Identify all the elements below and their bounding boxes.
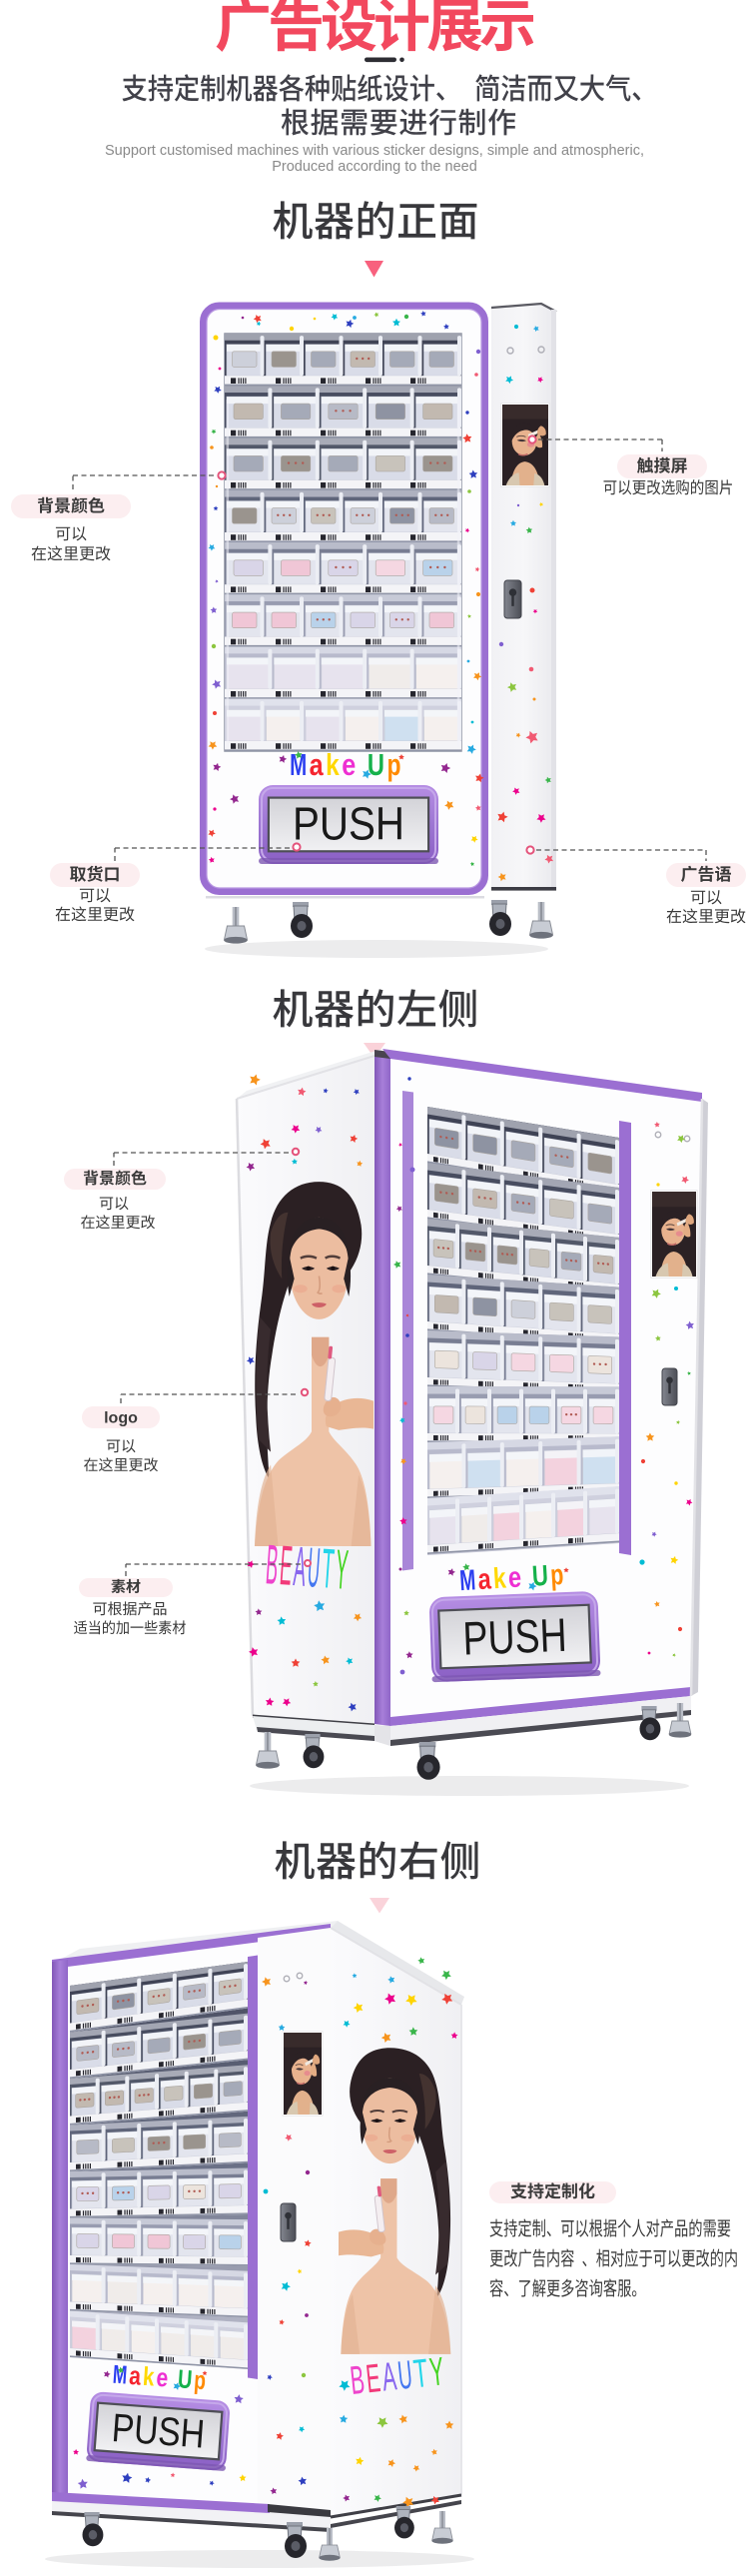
svg-text:PUSH: PUSH <box>110 2406 206 2457</box>
svg-text:Support customised machines wi: Support customised machines with various… <box>105 143 644 159</box>
svg-text:p: p <box>193 2364 207 2395</box>
svg-text:p: p <box>387 747 401 782</box>
svg-text:k: k <box>326 747 340 782</box>
svg-text:M: M <box>112 2359 128 2390</box>
svg-text:e: e <box>507 1562 522 1595</box>
svg-text:PUSH: PUSH <box>462 1608 568 1665</box>
svg-text:M: M <box>458 1564 476 1597</box>
svg-text:a: a <box>477 1563 493 1596</box>
svg-text:p: p <box>549 1559 564 1592</box>
svg-text:logo: logo <box>104 1410 138 1427</box>
svg-text:PUSH: PUSH <box>293 798 404 850</box>
svg-text:Produced according to the need: Produced according to the need <box>272 159 477 175</box>
svg-text:e: e <box>156 2362 170 2393</box>
svg-text:U: U <box>177 2363 193 2394</box>
svg-text:U: U <box>531 1560 549 1593</box>
svg-text:a: a <box>310 747 325 782</box>
svg-text:e: e <box>342 747 356 782</box>
svg-text:U: U <box>368 747 384 782</box>
